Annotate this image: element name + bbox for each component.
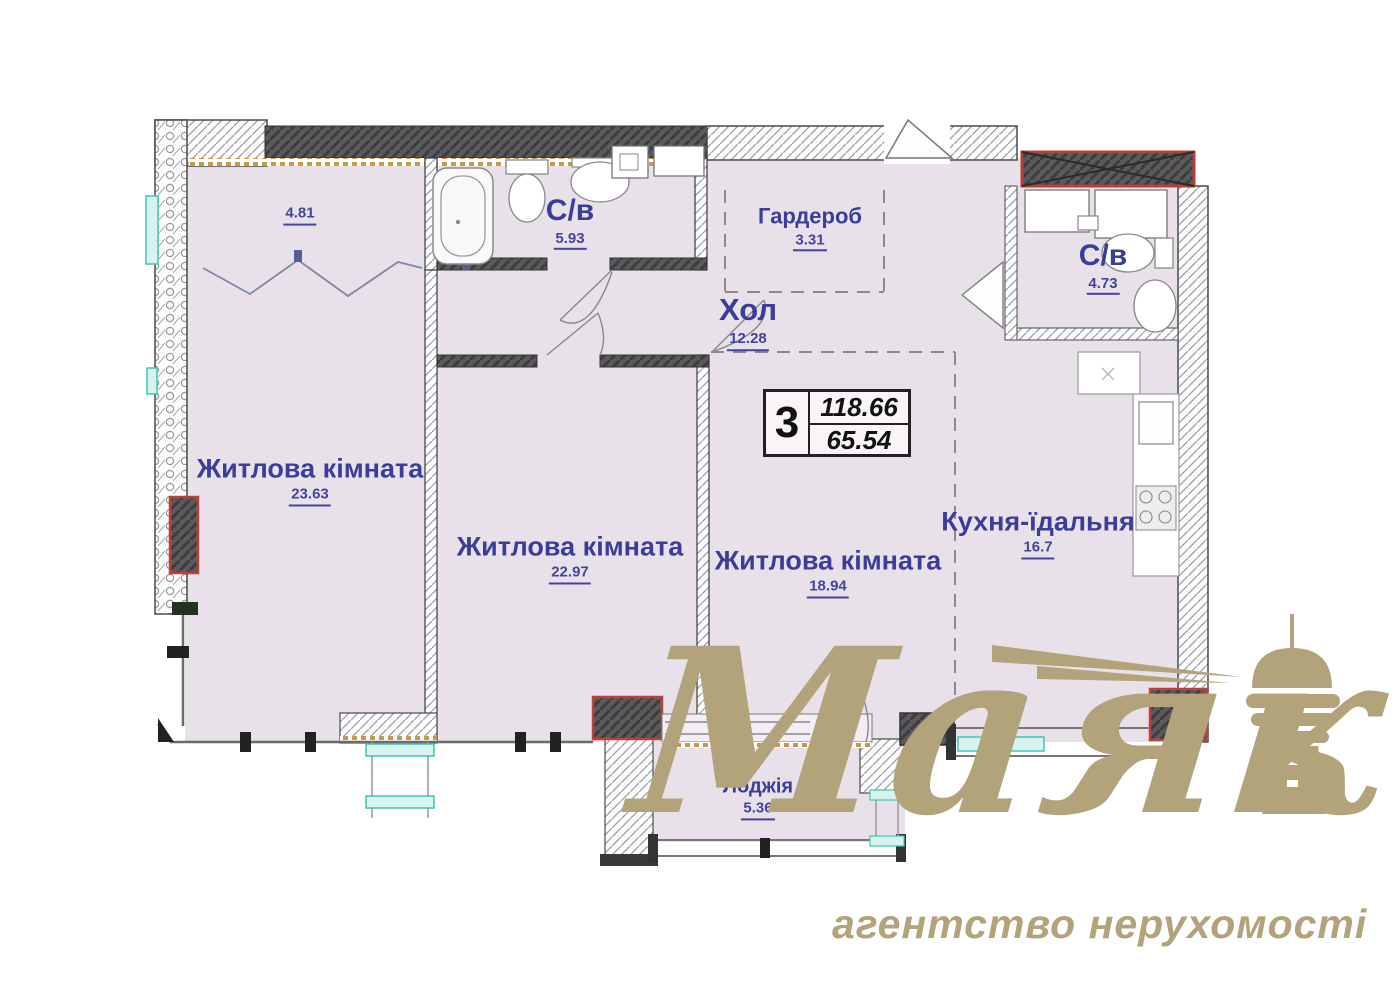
room-label-wardrobe: Гардероб 3.31 <box>758 204 862 251</box>
room-area: 4.73 <box>1086 275 1119 295</box>
room-area: 23.63 <box>289 487 331 507</box>
apartment-info-box: 3 118.66 65.54 <box>763 389 911 457</box>
room-name: Гардероб <box>758 204 862 229</box>
room-area: 18.94 <box>807 579 849 599</box>
rooms-count: 3 <box>766 392 810 454</box>
room-label-living-3: Житлова кімната 18.94 <box>715 545 941 598</box>
living-area: 65.54 <box>810 425 908 456</box>
room-label-kitchen: Кухня-їдальня 16.7 <box>941 506 1134 559</box>
room-name: Кухня-їдальня <box>941 506 1134 536</box>
room-name: Хол <box>719 293 777 328</box>
floor-plan-page: 4.81 С/в 5.93 Гардероб 3.31 Хол 12.28 С/… <box>0 0 1400 992</box>
room-area: 4.81 <box>283 206 316 226</box>
room-label-hall: Хол 12.28 <box>719 293 777 351</box>
room-label-loggia: Лоджія 5.36 <box>723 775 793 820</box>
total-area: 118.66 <box>810 392 908 425</box>
room-name: С/в <box>1079 239 1127 273</box>
room-area: 3.31 <box>793 232 826 252</box>
room-label-living-1: Житлова кімната 23.63 <box>197 453 423 506</box>
room-area: 5.93 <box>553 230 586 250</box>
room-name: Лоджія <box>723 775 793 797</box>
room-area: 22.97 <box>549 565 591 585</box>
room-name: Житлова кімната <box>457 531 683 561</box>
room-area: 5.36 <box>741 801 774 821</box>
room-area: 12.28 <box>727 331 769 351</box>
room-label-living-2: Житлова кімната 22.97 <box>457 531 683 584</box>
room-labels: 4.81 С/в 5.93 Гардероб 3.31 Хол 12.28 С/… <box>0 0 1400 992</box>
room-label-bathroom-1: С/в 5.93 <box>546 194 594 250</box>
room-label-balcony: 4.81 <box>283 203 316 226</box>
room-label-bathroom-2: С/в 4.73 <box>1079 239 1127 295</box>
room-area: 16.7 <box>1021 540 1054 560</box>
room-name: Житлова кімната <box>197 453 423 483</box>
room-name: Житлова кімната <box>715 545 941 575</box>
room-name: С/в <box>546 194 594 228</box>
